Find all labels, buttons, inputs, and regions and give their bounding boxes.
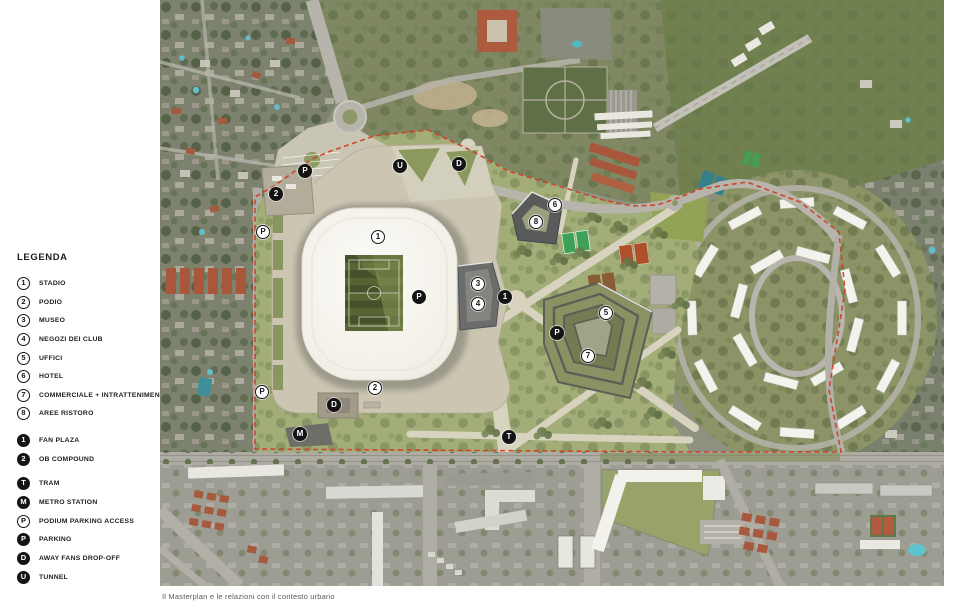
map-marker-parking-1: P <box>298 164 312 178</box>
legend-symbol: 7 <box>17 389 30 402</box>
legend-label: PARKING <box>39 536 72 543</box>
legend-label: MUSEO <box>39 317 65 324</box>
legend-label: FAN PLAZA <box>39 437 79 444</box>
legend-symbol: 1 <box>17 434 30 447</box>
legend-label: AREE RISTORO <box>39 410 94 417</box>
legend-symbol: 2 <box>17 453 30 466</box>
legend-item-commerciale: 7COMMERCIALE + INTRATTENIMENTO <box>17 388 170 402</box>
legend-label: OB COMPOUND <box>39 456 94 463</box>
legend-item-negozi: 4NEGOZI DEI CLUB <box>17 332 103 346</box>
legend-item-podium-parking: PPODIUM PARKING ACCESS <box>17 514 134 528</box>
map-marker-obcompound: 2 <box>269 187 283 201</box>
legend-symbol: U <box>17 571 30 584</box>
legend-item-hotel: 6HOTEL <box>17 369 63 383</box>
map-marker-podium-parking-2: P <box>255 385 269 399</box>
image-caption: Il Masterplan e le relazioni con il cont… <box>162 592 335 601</box>
legend-label: UFFICI <box>39 355 62 362</box>
legend-label: PODIUM PARKING ACCESS <box>39 518 134 525</box>
map-marker-commerciale: 7 <box>581 349 595 363</box>
legend-label: TUNNEL <box>39 574 68 581</box>
page: LEGENDA 1STADIO 2PODIO 3MUSEO 4NEGOZI DE… <box>0 0 960 609</box>
legend-item-metro: MMETRO STATION <box>17 495 98 509</box>
legend-item-stadio: 1STADIO <box>17 276 66 290</box>
masterplan-map: 1 2 3 4 5 6 7 8 1 2 T M P P P P P D D U <box>160 0 944 586</box>
south-boulevard <box>160 452 944 465</box>
legend-symbol: 2 <box>17 296 30 309</box>
map-marker-fanplaza: 1 <box>498 290 512 304</box>
racecourse-area <box>655 0 944 195</box>
legend-item-uffici: 5UFFICI <box>17 351 62 365</box>
map-marker-stadio: 1 <box>371 230 385 244</box>
legend: LEGENDA 1STADIO 2PODIO 3MUSEO 4NEGOZI DE… <box>0 240 160 590</box>
legend-item-tram: TTRAM <box>17 476 60 490</box>
map-marker-dropoff-1: D <box>327 398 341 412</box>
legend-item-tunnel: UTUNNEL <box>17 570 68 584</box>
map-marker-podium-parking-1: P <box>256 225 270 239</box>
map-marker-metro: M <box>293 427 307 441</box>
map-marker-museo: 3 <box>471 277 485 291</box>
legend-label: NEGOZI DEI CLUB <box>39 336 103 343</box>
masterplan-aerial-image <box>160 0 944 586</box>
map-marker-tunnel: U <box>393 159 407 173</box>
legend-title: LEGENDA <box>17 252 68 263</box>
map-marker-hotel: 6 <box>548 198 562 212</box>
urban-south <box>160 460 944 586</box>
legend-label: AWAY FANS DROP-OFF <box>39 555 120 562</box>
legend-symbol: 8 <box>17 407 30 420</box>
map-marker-parking-3: P <box>550 326 564 340</box>
map-marker-podio: 2 <box>368 381 382 395</box>
legend-label: METRO STATION <box>39 499 98 506</box>
map-marker-negozi: 4 <box>471 297 485 311</box>
legend-item-dropoff: DAWAY FANS DROP-OFF <box>17 551 120 565</box>
road-south-1 <box>423 465 437 586</box>
legend-label: TRAM <box>39 480 60 487</box>
legend-item-ristoro: 8AREE RISTORO <box>17 406 94 420</box>
legend-symbol: P <box>17 533 30 546</box>
stadium-pitch <box>345 255 403 331</box>
map-marker-parking-2: P <box>412 290 426 304</box>
legend-symbol: D <box>17 552 30 565</box>
map-marker-dropoff-2: D <box>452 157 466 171</box>
museum-building <box>458 262 500 330</box>
legend-label: COMMERCIALE + INTRATTENIMENTO <box>39 392 170 399</box>
legend-symbol: 4 <box>17 333 30 346</box>
legend-item-museo: 3MUSEO <box>17 313 65 327</box>
legend-symbol: 3 <box>17 314 30 327</box>
legend-symbol: P <box>17 515 30 528</box>
legend-symbol: 1 <box>17 277 30 290</box>
legend-label: PODIO <box>39 299 62 306</box>
map-marker-tram: T <box>502 430 516 444</box>
legend-symbol: 6 <box>17 370 30 383</box>
legend-label: HOTEL <box>39 373 63 380</box>
map-marker-uffici: 5 <box>599 306 613 320</box>
legend-symbol: M <box>17 496 30 509</box>
map-marker-ristoro: 8 <box>529 215 543 229</box>
legend-item-obcompound: 2OB COMPOUND <box>17 452 94 466</box>
legend-label: STADIO <box>39 280 66 287</box>
legend-item-fanplaza: 1FAN PLAZA <box>17 433 79 447</box>
legend-item-parking: PPARKING <box>17 532 72 546</box>
legend-item-podio: 2PODIO <box>17 295 62 309</box>
legend-symbol: T <box>17 477 30 490</box>
legend-symbol: 5 <box>17 352 30 365</box>
